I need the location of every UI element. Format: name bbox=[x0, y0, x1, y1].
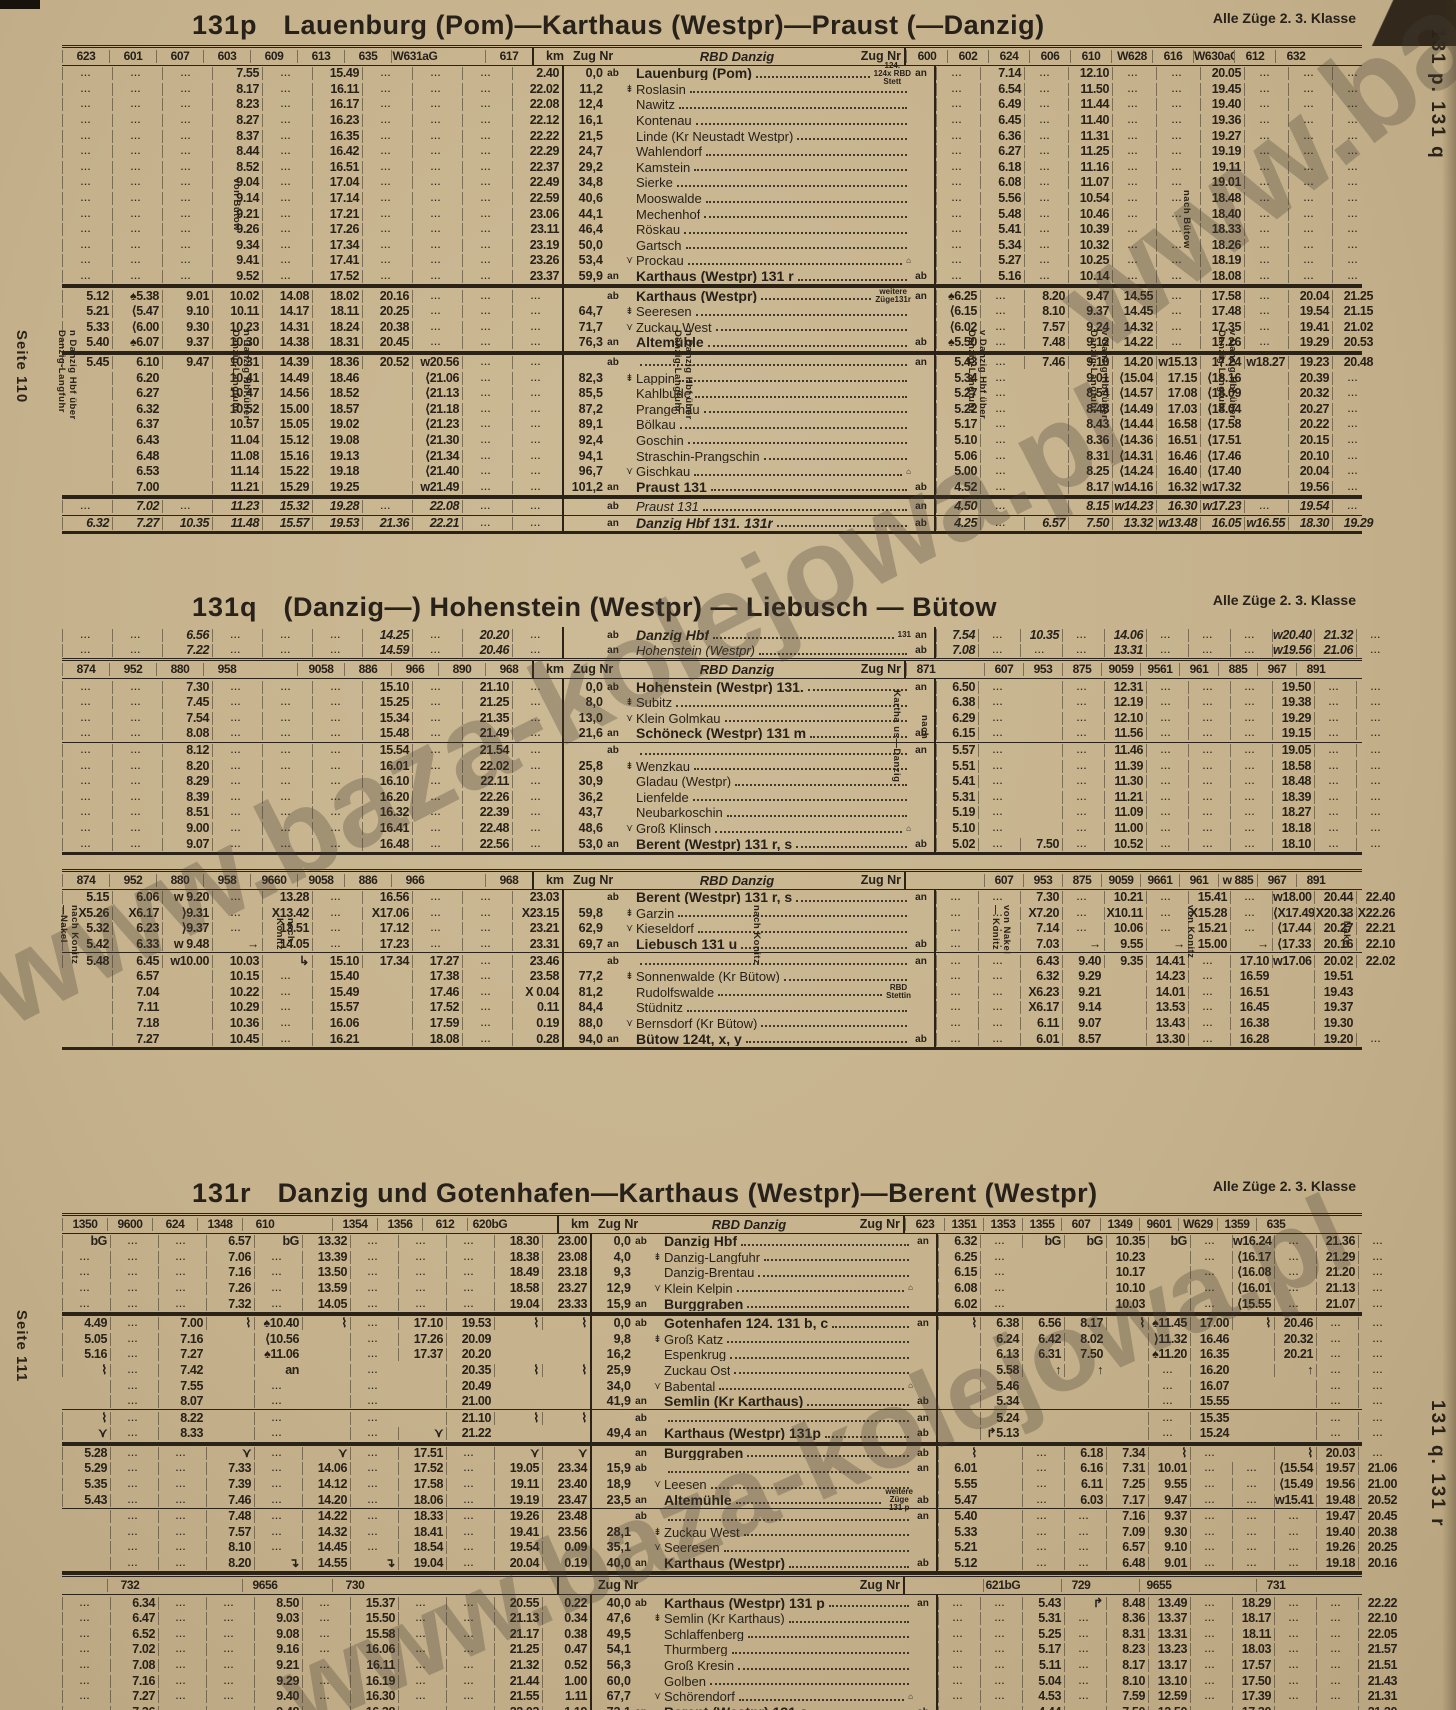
train-number-header: W630aG bbox=[1193, 50, 1234, 63]
time-cell: ... bbox=[1274, 1510, 1316, 1523]
time-cell: ... bbox=[254, 1462, 302, 1475]
time-cell: ... bbox=[398, 1235, 446, 1248]
time-cell: 8.10 bbox=[206, 1541, 254, 1554]
time-cell: ... bbox=[158, 1557, 206, 1570]
km-value: 16,2 bbox=[595, 1348, 631, 1361]
time-cell: ... bbox=[206, 1612, 254, 1625]
time-cell: ... bbox=[110, 1298, 158, 1311]
time-cell: 17.10 bbox=[398, 1317, 446, 1330]
time-cell: ... bbox=[1358, 1348, 1400, 1361]
timetable-block: 5.456.109.4710.3114.3918.3620.52w20.56..… bbox=[62, 354, 1362, 498]
time-cell: 16.51 bbox=[312, 161, 362, 174]
time-cell: 6.48 bbox=[1106, 1557, 1148, 1570]
dotted-leader bbox=[734, 1370, 909, 1374]
time-cell: ... bbox=[980, 1612, 1022, 1625]
time-cell: 16.21 bbox=[312, 1033, 362, 1046]
time-cell: 9.08 bbox=[254, 1628, 302, 1641]
time-cell: 20.16 bbox=[1358, 1557, 1400, 1570]
time-cell: ... bbox=[158, 1235, 206, 1248]
dotted-leader bbox=[713, 635, 894, 639]
time-cell: 8.20 bbox=[162, 760, 212, 773]
station-row-middle: 71,7⋎Zuckau West bbox=[562, 320, 936, 336]
time-cell: 0.11 bbox=[512, 1001, 562, 1014]
dotted-leader bbox=[704, 214, 907, 218]
time-cell: ⟨17.51 bbox=[1200, 434, 1244, 447]
dotted-leader bbox=[764, 456, 907, 460]
station-row-middle: aban bbox=[562, 355, 936, 371]
train-number-header: 875 bbox=[1062, 874, 1101, 887]
time-cell: ... bbox=[938, 1690, 980, 1703]
km-value: 34,8 bbox=[567, 176, 603, 189]
time-cell: ... bbox=[512, 372, 562, 385]
time-cell: 10.14 bbox=[1068, 270, 1112, 283]
time-cell: ... bbox=[1288, 145, 1332, 158]
time-cell: ... bbox=[262, 83, 312, 96]
time-cell: 6.32 bbox=[62, 517, 112, 530]
km-value: 71,7 bbox=[567, 321, 603, 334]
time-cell: ... bbox=[936, 239, 980, 252]
time-cell: 9.30 bbox=[1148, 1526, 1190, 1539]
time-cell: ... bbox=[978, 744, 1020, 757]
time-cell: 17.50 bbox=[1232, 1675, 1274, 1688]
time-cell: 6.48 bbox=[112, 450, 162, 463]
time-cell: 21.17 bbox=[494, 1628, 542, 1641]
station-name: Mechenhof bbox=[636, 208, 700, 221]
time-cell: ⌇ bbox=[542, 1364, 590, 1377]
time-cell: ... bbox=[1316, 1333, 1358, 1346]
dotted-leader bbox=[706, 152, 907, 156]
time-cell: ⋎ bbox=[542, 1447, 590, 1460]
time-cell: ... bbox=[254, 1266, 302, 1279]
time-cell: ... bbox=[362, 67, 412, 80]
time-cell: 6.47 bbox=[110, 1612, 158, 1625]
train-number-header: 9058 bbox=[297, 874, 344, 887]
time-cell: 9.07 bbox=[162, 838, 212, 851]
time-cell: ... bbox=[398, 1706, 446, 1710]
time-cell: ... bbox=[1244, 305, 1288, 318]
time-cell: ... bbox=[62, 145, 112, 158]
time-cell: ⟨21.06 bbox=[412, 372, 462, 385]
dep-arr-marker-right: an bbox=[913, 1510, 933, 1523]
timetable-row: 5.35......7.39...14.12...17.58...19.1123… bbox=[62, 1477, 1362, 1493]
time-cell: 18.06 bbox=[398, 1494, 446, 1507]
station-name: Liebusch 131 u bbox=[636, 938, 737, 951]
time-cell: ... bbox=[62, 114, 112, 127]
time-cell: X10.11 bbox=[1104, 907, 1146, 920]
time-cell: ... bbox=[412, 727, 462, 740]
time-cell: ... bbox=[312, 712, 362, 725]
stop-type-icon: ⋎ bbox=[623, 712, 636, 725]
time-cell: 15.49 bbox=[312, 986, 362, 999]
time-cell: 22.11 bbox=[462, 775, 512, 788]
station-row-middle: 59,8⇟Garzin bbox=[562, 906, 936, 922]
time-cell: ... bbox=[1356, 1033, 1398, 1046]
time-cell: 5.24 bbox=[980, 1412, 1022, 1425]
time-cell: 9.48 bbox=[254, 1706, 302, 1710]
timetable-row: ...7.08......9.21...16.11......21.320.52… bbox=[62, 1658, 1362, 1674]
time-cell: 15.40 bbox=[312, 970, 362, 983]
train-number-header: 612 bbox=[422, 1218, 467, 1231]
dep-arr-marker-right: ab bbox=[911, 336, 931, 349]
time-cell: 10.52 bbox=[1104, 838, 1146, 851]
time-cell: ... bbox=[212, 907, 262, 920]
time-cell: ⟨15.49 bbox=[1274, 1478, 1316, 1491]
time-cell: ... bbox=[936, 208, 980, 221]
time-cell: ... bbox=[398, 1643, 446, 1656]
train-number-header: 890 bbox=[438, 663, 485, 676]
time-cell: ... bbox=[262, 822, 312, 835]
train-number-header: 624 bbox=[152, 1218, 197, 1231]
time-cell: ... bbox=[1020, 644, 1062, 657]
timetable-row: 5.21⟨5.479.1010.1114.1718.1120.25.......… bbox=[62, 304, 1362, 320]
timetable-row: ⌇...7.42an...20.35⌇⌇25,9Zuckau Ost5.58↑↑… bbox=[62, 1363, 1362, 1379]
km-value: 36,2 bbox=[567, 791, 603, 804]
time-cell: ... bbox=[512, 481, 562, 494]
time-cell: ... bbox=[1316, 1364, 1358, 1377]
time-cell: 20.35 bbox=[446, 1364, 494, 1377]
station-row-middle: 29,2Kamstein bbox=[562, 160, 936, 176]
route-number: 131q bbox=[192, 592, 258, 623]
time-cell: ... bbox=[62, 822, 112, 835]
time-cell: 14.20 bbox=[1112, 356, 1156, 369]
time-cell: 20.25 bbox=[1358, 1541, 1400, 1554]
dotted-leader bbox=[640, 961, 907, 965]
time-cell: 7.16 bbox=[110, 1675, 158, 1688]
time-cell: ... bbox=[112, 223, 162, 236]
time-cell: ... bbox=[512, 696, 562, 709]
time-cell: 5.17 bbox=[1022, 1643, 1064, 1656]
time-cell: ... bbox=[1112, 239, 1156, 252]
time-cell: 8.37 bbox=[212, 130, 262, 143]
time-cell: ... bbox=[978, 986, 1020, 999]
rotated-label: n Danzig Hbf über Danzig-Langfuhr bbox=[230, 330, 252, 420]
time-cell: ↑ bbox=[1022, 1364, 1064, 1377]
time-cell: ... bbox=[980, 465, 1024, 478]
train-number-header: 729 bbox=[1061, 1579, 1100, 1592]
station-row-middle: 96,7⋎Gischkau⌂ bbox=[562, 464, 936, 480]
time-cell: an bbox=[254, 1364, 302, 1377]
km-value: 47,6 bbox=[595, 1612, 631, 1625]
station-name: Leesen bbox=[664, 1478, 707, 1491]
time-cell: ... bbox=[978, 629, 1020, 642]
time-cell: ... bbox=[62, 98, 112, 111]
time-cell: 7.30 bbox=[1020, 891, 1062, 904]
time-cell: ... bbox=[62, 223, 112, 236]
dep-arr-marker: ab bbox=[603, 681, 623, 694]
train-number-header: 874 bbox=[62, 874, 109, 887]
time-cell: ... bbox=[350, 1478, 398, 1491]
time-cell: 17.57 bbox=[1232, 1659, 1274, 1672]
time-cell: 5.34 bbox=[980, 239, 1024, 252]
time-cell: ... bbox=[212, 838, 262, 851]
time-cell: ... bbox=[362, 130, 412, 143]
time-cell: 14.01 bbox=[1146, 986, 1188, 999]
time-cell: 23.56 bbox=[542, 1526, 590, 1539]
station-row-middle: 8,0⇟Subitz bbox=[562, 695, 936, 711]
dotted-leader bbox=[832, 1324, 909, 1328]
timetable-row: 7.0011.2115.2919.25w21.49......101,2anPr… bbox=[62, 479, 1362, 495]
time-cell: 5.04 bbox=[1022, 1675, 1064, 1688]
time-cell: 19.36 bbox=[1200, 114, 1244, 127]
time-cell: 8.23 bbox=[1106, 1643, 1148, 1656]
time-cell: ... bbox=[1190, 1526, 1232, 1539]
train-number-header: 9561 bbox=[1140, 663, 1179, 676]
time-cell: ... bbox=[1232, 1478, 1274, 1491]
time-cell: ... bbox=[512, 644, 562, 657]
time-cell: ... bbox=[938, 1643, 980, 1656]
timetable-row: 5.29......7.33...14.06...17.52...19.0523… bbox=[62, 1461, 1362, 1477]
station-name: Garzin bbox=[636, 907, 674, 920]
time-cell: 0.34 bbox=[542, 1612, 590, 1625]
time-cell: ... bbox=[312, 744, 362, 757]
time-cell: ... bbox=[112, 208, 162, 221]
km-value: 28,1 bbox=[595, 1526, 631, 1539]
time-cell: ... bbox=[1146, 922, 1188, 935]
time-cell: ... bbox=[412, 806, 462, 819]
station-name: Bernsdorf (Kr Bütow) bbox=[636, 1017, 757, 1030]
time-cell: ... bbox=[158, 1266, 206, 1279]
time-cell: 21.57 bbox=[1358, 1643, 1400, 1656]
time-cell: 19.57 bbox=[1316, 1462, 1358, 1475]
station-row-middle: 54,1Thurmberg bbox=[590, 1642, 938, 1658]
time-cell: 5.57 bbox=[936, 744, 978, 757]
time-cell: 9.55 bbox=[1104, 938, 1146, 951]
time-cell: ... bbox=[1288, 239, 1332, 252]
dotted-leader bbox=[693, 797, 907, 801]
time-cell: ... bbox=[1190, 1675, 1232, 1688]
time-cell: 7.55 bbox=[212, 67, 262, 80]
time-cell: ... bbox=[1358, 1447, 1400, 1460]
timetable-row: ......8.29.........16.10...22.11...30,9G… bbox=[62, 774, 1362, 790]
time-cell: 21.06 bbox=[1358, 1462, 1400, 1475]
time-cell: → bbox=[212, 938, 262, 951]
time-cell: ... bbox=[206, 1643, 254, 1656]
time-cell: 16.01 bbox=[362, 760, 412, 773]
time-cell: 9.01 bbox=[1148, 1557, 1190, 1570]
time-cell: 7.57 bbox=[1024, 321, 1068, 334]
time-cell: 7.46 bbox=[206, 1494, 254, 1507]
km-value: 0,0 bbox=[595, 1317, 631, 1330]
dotted-leader bbox=[739, 1697, 904, 1701]
dep-arr-marker: an bbox=[631, 1298, 651, 1311]
time-cell: ... bbox=[112, 696, 162, 709]
station-row-middle: 34,0⋎Babental⌂ bbox=[590, 1378, 938, 1394]
time-cell: ... bbox=[350, 1333, 398, 1346]
station-name: Gotenhafen 124. 131 b, c bbox=[664, 1317, 828, 1330]
time-cell: 17.41 bbox=[312, 254, 362, 267]
time-cell: 9.34 bbox=[212, 239, 262, 252]
km-value: 34,0 bbox=[595, 1380, 631, 1393]
train-number-header: 9059 bbox=[1101, 874, 1140, 887]
time-cell: ... bbox=[1112, 145, 1156, 158]
time-cell: 8.17 bbox=[1106, 1659, 1148, 1672]
time-cell: ... bbox=[1244, 145, 1288, 158]
time-cell: 18.17 bbox=[1232, 1612, 1274, 1625]
time-cell: 6.25 bbox=[938, 1251, 980, 1264]
time-cell: 8.43 bbox=[1068, 418, 1112, 431]
time-cell: 22.02 bbox=[462, 760, 512, 773]
station-name: Danzig Hbf 131. 131r bbox=[636, 517, 773, 530]
timetable-row: ......9.07.........16.48...22.56...53,0a… bbox=[62, 836, 1362, 852]
time-cell: ... bbox=[512, 517, 562, 530]
time-cell: ⌇ bbox=[1106, 1317, 1148, 1330]
time-cell: 5.47 bbox=[938, 1494, 980, 1507]
time-cell: 12.50 bbox=[1148, 1706, 1190, 1710]
time-cell: ... bbox=[62, 1282, 110, 1295]
time-cell: ... bbox=[462, 372, 512, 385]
rbd-label: RBD Danzig bbox=[613, 874, 860, 887]
time-cell: 13.32 bbox=[1112, 517, 1156, 530]
time-cell: ... bbox=[1188, 970, 1230, 983]
station-row-middle: 13,0⋎Klein Golmkau bbox=[562, 711, 936, 727]
time-cell: 7.27 bbox=[112, 1033, 162, 1046]
time-cell: ... bbox=[158, 1675, 206, 1688]
time-cell: 16.10 bbox=[362, 775, 412, 788]
time-cell: 7.11 bbox=[112, 1001, 162, 1014]
time-cell: ... bbox=[262, 145, 312, 158]
time-cell: 5.11 bbox=[1022, 1659, 1064, 1672]
dotted-leader bbox=[825, 1434, 909, 1438]
time-cell: 14.32 bbox=[302, 1526, 350, 1539]
time-cell: 19.54 bbox=[494, 1541, 542, 1554]
time-cell: 20.04 bbox=[1288, 290, 1332, 303]
time-cell: 23.18 bbox=[542, 1266, 590, 1279]
time-cell: ... bbox=[412, 270, 462, 283]
time-cell: ... bbox=[112, 83, 162, 96]
time-cell: ... bbox=[978, 727, 1020, 740]
time-cell: 13.37 bbox=[1148, 1612, 1190, 1625]
time-cell: 6.50 bbox=[936, 681, 978, 694]
time-cell: 22.05 bbox=[1358, 1628, 1400, 1641]
time-cell: 23.31 bbox=[512, 938, 562, 951]
station-name: Zuckau Ost bbox=[664, 1364, 730, 1377]
time-cell: 1.19 bbox=[542, 1706, 590, 1710]
time-cell: ... bbox=[1146, 696, 1188, 709]
time-cell: ... bbox=[350, 1541, 398, 1554]
time-cell: 5.06 bbox=[936, 450, 980, 463]
time-cell: ... bbox=[350, 1427, 398, 1440]
dep-arr-marker: an bbox=[603, 644, 623, 657]
time-cell: ... bbox=[162, 176, 212, 189]
station-name: Zuckau West bbox=[664, 1526, 740, 1539]
time-cell: ... bbox=[262, 775, 312, 788]
time-cell: ... bbox=[312, 938, 362, 951]
time-cell: ... bbox=[1316, 1597, 1358, 1610]
time-cell: w16.24 bbox=[1232, 1235, 1274, 1248]
time-cell: ... bbox=[302, 1690, 350, 1703]
timetable-row: .........9.26...17.26.........23.1146,4R… bbox=[62, 222, 1362, 238]
time-cell: 9.47 bbox=[162, 356, 212, 369]
time-cell: 7.50 bbox=[1068, 517, 1112, 530]
time-cell: ... bbox=[512, 822, 562, 835]
timetable-row: 13509600624134861013541356612620bGkmZug … bbox=[62, 1213, 1362, 1234]
time-cell: ... bbox=[312, 681, 362, 694]
time-cell: ... bbox=[978, 806, 1020, 819]
time-cell: ... bbox=[1244, 500, 1288, 513]
time-cell: ... bbox=[1112, 67, 1156, 80]
km-value: 9,3 bbox=[595, 1266, 631, 1279]
dep-arr-marker-right: an bbox=[911, 356, 931, 369]
dep-arr-marker: an bbox=[603, 838, 623, 851]
time-cell: 22.21 bbox=[412, 517, 462, 530]
time-cell: ... bbox=[350, 1317, 398, 1330]
time-cell: ... bbox=[462, 223, 512, 236]
time-cell: 21.07 bbox=[1316, 1298, 1358, 1311]
timetable-row: ......7.57...14.32...18.41...19.4123.562… bbox=[62, 1525, 1362, 1541]
time-cell: ... bbox=[350, 1462, 398, 1475]
time-cell: ... bbox=[980, 500, 1024, 513]
time-cell: 23.11 bbox=[512, 223, 562, 236]
km-value: 18,9 bbox=[595, 1478, 631, 1491]
time-cell: ... bbox=[980, 418, 1024, 431]
time-cell: 6.37 bbox=[112, 418, 162, 431]
time-cell: ... bbox=[512, 500, 562, 513]
train-number-header: 961 bbox=[1179, 874, 1218, 887]
time-cell: ... bbox=[412, 67, 462, 80]
rbd-label: RBD Danzig bbox=[613, 50, 860, 63]
time-cell: 6.16 bbox=[1064, 1462, 1106, 1475]
time-cell: 7.59 bbox=[1106, 1690, 1148, 1703]
time-cell: 7.22 bbox=[162, 644, 212, 657]
time-cell: ... bbox=[110, 1510, 158, 1523]
time-cell: 7.25 bbox=[1106, 1478, 1148, 1491]
time-cell: 16.06 bbox=[312, 1017, 362, 1030]
time-cell: ... bbox=[206, 1706, 254, 1710]
time-cell: ... bbox=[254, 1298, 302, 1311]
station-name: Berent (Westpr) 131 s bbox=[664, 1706, 808, 1710]
time-cell: 22.39 bbox=[462, 806, 512, 819]
km-value: 11,2 bbox=[567, 83, 603, 96]
time-cell: 5.12 bbox=[938, 1557, 980, 1570]
time-cell: ... bbox=[938, 1597, 980, 1610]
time-cell: ... bbox=[212, 744, 262, 757]
time-cell: ⌇ bbox=[206, 1317, 254, 1330]
time-cell: 13.23 bbox=[1148, 1643, 1190, 1656]
time-cell: 14.06 bbox=[1104, 629, 1146, 642]
timetable-block: ......6.56.........14.25...20.20...abDan… bbox=[62, 627, 1362, 658]
time-cell: 5.46 bbox=[980, 1380, 1022, 1393]
timetable-row: 4.49...7.00⌇♠10.40⌇...17.1019.53⌇⌇0,0abG… bbox=[62, 1315, 1362, 1332]
time-cell: 15.57 bbox=[262, 517, 312, 530]
dotted-leader bbox=[789, 1619, 909, 1623]
time-cell: 11.39 bbox=[1104, 760, 1146, 773]
km-value: 29,2 bbox=[567, 161, 603, 174]
train-number-header: 880 bbox=[156, 663, 203, 676]
timetable-row: ...8.07......21.0041,9anSemlin (Kr Karth… bbox=[62, 1394, 1362, 1410]
time-cell: ... bbox=[312, 922, 362, 935]
time-cell: 7.34 bbox=[1106, 1447, 1148, 1460]
time-cell: ... bbox=[1274, 1659, 1316, 1672]
time-cell: ... bbox=[398, 1282, 446, 1295]
time-cell: 16.58 bbox=[1156, 418, 1200, 431]
time-cell: 15.35 bbox=[1190, 1412, 1232, 1425]
time-cell: ... bbox=[936, 67, 980, 80]
time-cell: ... bbox=[412, 161, 462, 174]
time-cell: ... bbox=[1188, 806, 1230, 819]
rotated-label: 131 p. 131 q bbox=[1426, 28, 1448, 160]
time-cell: 19.02 bbox=[312, 418, 362, 431]
time-cell: 10.45 bbox=[212, 1033, 262, 1046]
route-title: Danzig und Gotenhafen—Karthaus (Westpr)—… bbox=[278, 1178, 1098, 1209]
time-cell: 16.11 bbox=[312, 83, 362, 96]
time-cell: 18.08 bbox=[412, 1033, 462, 1046]
time-cell: 15.29 bbox=[262, 481, 312, 494]
time-cell: 18.11 bbox=[312, 305, 362, 318]
time-cell: 8.15 bbox=[1068, 500, 1112, 513]
time-cell: 10.06 bbox=[1104, 922, 1146, 935]
station-row-middle: 11,2⇟Roslasin bbox=[562, 82, 936, 98]
station-name: Hohenstein (Westpr) 131. bbox=[636, 681, 804, 694]
